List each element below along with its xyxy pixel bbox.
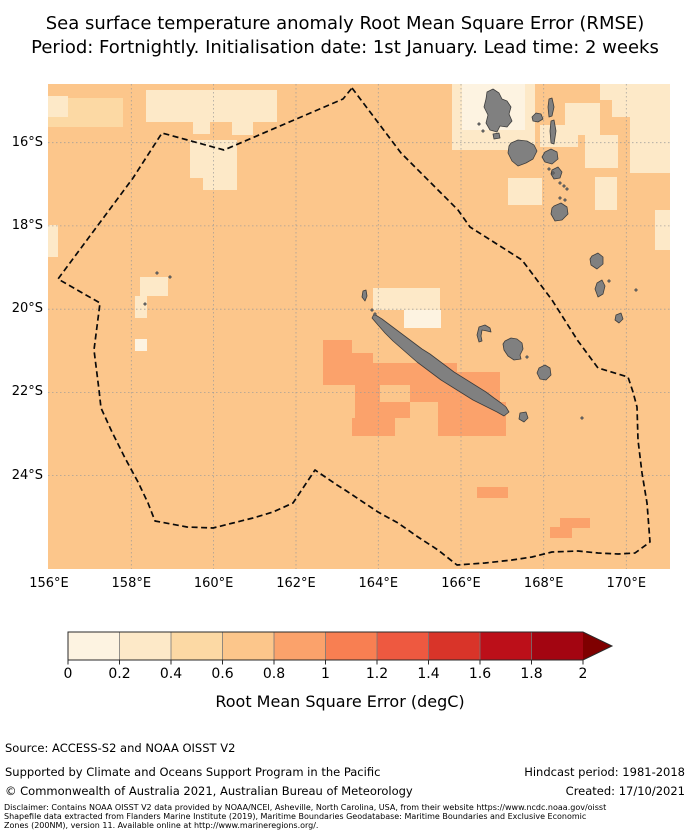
disclaimer-line-3: Zones (200NM), version 11. Available onl… [4,822,690,831]
copyright-text: © Commonwealth of Australia 2021, Austra… [5,784,413,798]
colorbar-over-arrow [583,632,612,660]
colorbar-tick-label: 1.8 [512,666,552,682]
islet-dot [566,188,569,191]
islet-dot [374,313,377,316]
colorbar-segment [480,632,532,660]
colorbar-tick-label: 0.8 [254,666,294,682]
colorbar-segment [120,632,172,660]
source-text: Source: ACCESS-S2 and NOAA OISST V2 [5,741,235,755]
islet-dot [156,272,159,275]
islet-dot [563,185,566,188]
x-tick-label: 168°E [514,576,574,591]
x-tick-label: 164°E [348,576,408,591]
colorbar-segment [68,632,120,660]
colorbar-tick-label: 1.6 [460,666,500,682]
colorbar-tick-label: 0 [48,666,88,682]
x-tick-label: 160°E [184,576,244,591]
disclaimer: Disclaimer: Contains NOAA OISST V2 data … [4,804,690,830]
colorbar-tick-label: 2 [563,666,603,682]
figure: Sea surface temperature anomaly Root Mea… [0,0,690,839]
colorbar-segment [274,632,326,660]
x-tick-label: 156°E [19,576,79,591]
y-tick-label: 18°S [0,218,43,233]
colorbar-segment [532,632,584,660]
islet-dot [482,130,485,133]
colorbar-segment [429,632,481,660]
y-tick-label: 16°S [0,135,43,150]
x-tick-label: 170°E [596,576,656,591]
map-canvas [48,84,670,569]
chart-title: Sea surface temperature anomaly Root Mea… [46,13,645,34]
islet-dot [608,280,611,283]
y-tick-label: 20°S [0,301,43,316]
colorbar-segment [223,632,275,660]
colorbar-tick-label: 1.2 [357,666,397,682]
colorbar [66,630,626,670]
chart-subtitle: Period: Fortnightly. Initialisation date… [31,37,659,58]
colorbar-label: Root Mean Square Error (degC) [215,692,464,711]
created-date-text: Created: 17/10/2021 [566,784,685,798]
islet-dot [144,303,147,306]
y-tick-label: 22°S [0,384,43,399]
y-tick-label: 24°S [0,468,43,483]
x-tick-label: 162°E [266,576,326,591]
x-tick-label: 158°E [101,576,161,591]
colorbar-segment [171,632,223,660]
islet-dot [559,182,562,185]
x-tick-label: 166°E [431,576,491,591]
colorbar-tick-label: 0.6 [203,666,243,682]
disclaimer-line-1: Disclaimer: Contains NOAA OISST V2 data … [4,804,690,813]
hindcast-period-text: Hindcast period: 1981-2018 [524,765,685,779]
colorbar-tick-label: 0.2 [100,666,140,682]
islet-dot [526,356,529,359]
islet-dot [559,197,562,200]
islet-dot [635,289,638,292]
islet-dot [169,276,172,279]
islet-dot [552,172,555,175]
colorbar-tick-label: 1 [306,666,346,682]
islet-dot [548,168,551,171]
islet-dot [478,123,481,126]
supported-text: Supported by Climate and Oceans Support … [5,765,380,779]
ocean-background [48,84,670,569]
islet-dot [371,309,374,312]
colorbar-tick-label: 1.4 [409,666,449,682]
islet-dot [564,199,567,202]
colorbar-segment [377,632,429,660]
colorbar-tick-label: 0.4 [151,666,191,682]
island-malo [493,133,500,139]
disclaimer-line-2: Shapefile data extracted from Flanders M… [4,813,690,822]
colorbar-segment [326,632,378,660]
islet-dot [581,417,584,420]
